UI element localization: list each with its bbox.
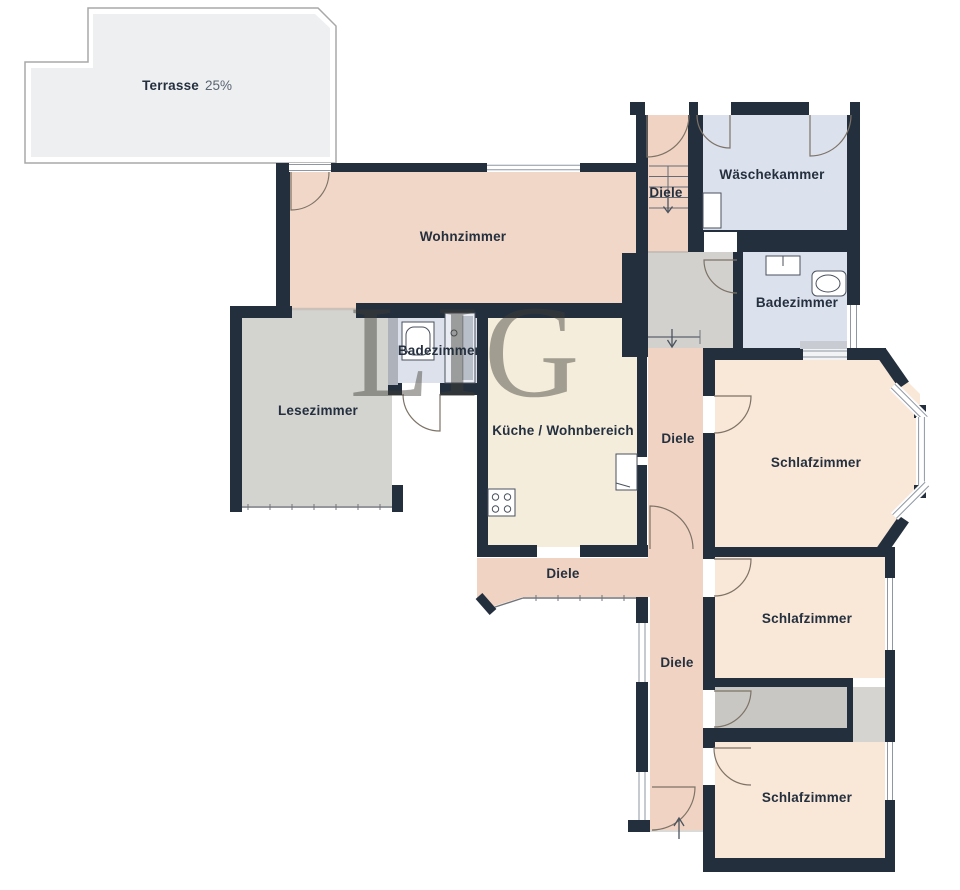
room-label-diele-flur: Diele (546, 566, 580, 581)
terrasse-share-value: 25% (205, 78, 232, 93)
room-label-schlafzimmer-2: Schlafzimmer (762, 611, 853, 626)
sliding-door (800, 341, 847, 349)
window-diele-2-icon (636, 772, 648, 820)
window-schlafzimmer3-icon (885, 742, 895, 800)
room-label-terrasse: Terrasse (142, 78, 199, 93)
room-schlafzimmer-1 (715, 357, 920, 547)
room-label-badezimmer-klein: Badezimmer (398, 343, 481, 358)
window-schlafzimmer2-icon (885, 578, 895, 650)
room-floors (240, 114, 920, 858)
room-label-diele-unten: Diele (660, 655, 694, 670)
stove-icon (488, 489, 515, 516)
room-label-kueche: Küche / Wohnbereich (492, 423, 634, 438)
window-schlafzimmer1-top-icon (803, 348, 847, 360)
room-label-schlafzimmer-3: Schlafzimmer (762, 790, 853, 805)
room-label-waeschekammer: Wäschekammer (719, 167, 825, 182)
window-wohnzimmer-icon (487, 163, 580, 172)
toilet-icon (766, 256, 800, 275)
kitchen-wall-cabinet-icon (616, 454, 637, 490)
room-label-diele-treppe: Diele (649, 185, 683, 200)
washbasin-large-icon (812, 271, 846, 296)
room-label-diele-mitte: Diele (661, 431, 695, 446)
floor-plan-svg: LIG Terrasse 25% Wohnzimmer Wäschekammer… (0, 0, 960, 890)
laundry-box-icon (703, 193, 721, 228)
floor-plan-page: LIG Terrasse 25% Wohnzimmer Wäschekammer… (0, 0, 960, 890)
landing-floor (646, 252, 733, 350)
room-label-wohnzimmer: Wohnzimmer (420, 229, 507, 244)
closet-strip (715, 687, 847, 728)
room-label-lesezimmer: Lesezimmer (278, 403, 359, 418)
room-label-schlafzimmer-1: Schlafzimmer (771, 455, 862, 470)
room-label-badezimmer-gross: Badezimmer (756, 295, 839, 310)
closet-niche (853, 687, 885, 742)
window-badezimmer-icon (847, 305, 860, 348)
bay-window-mid-icon (916, 417, 927, 485)
window-diele-1-icon (636, 623, 648, 682)
